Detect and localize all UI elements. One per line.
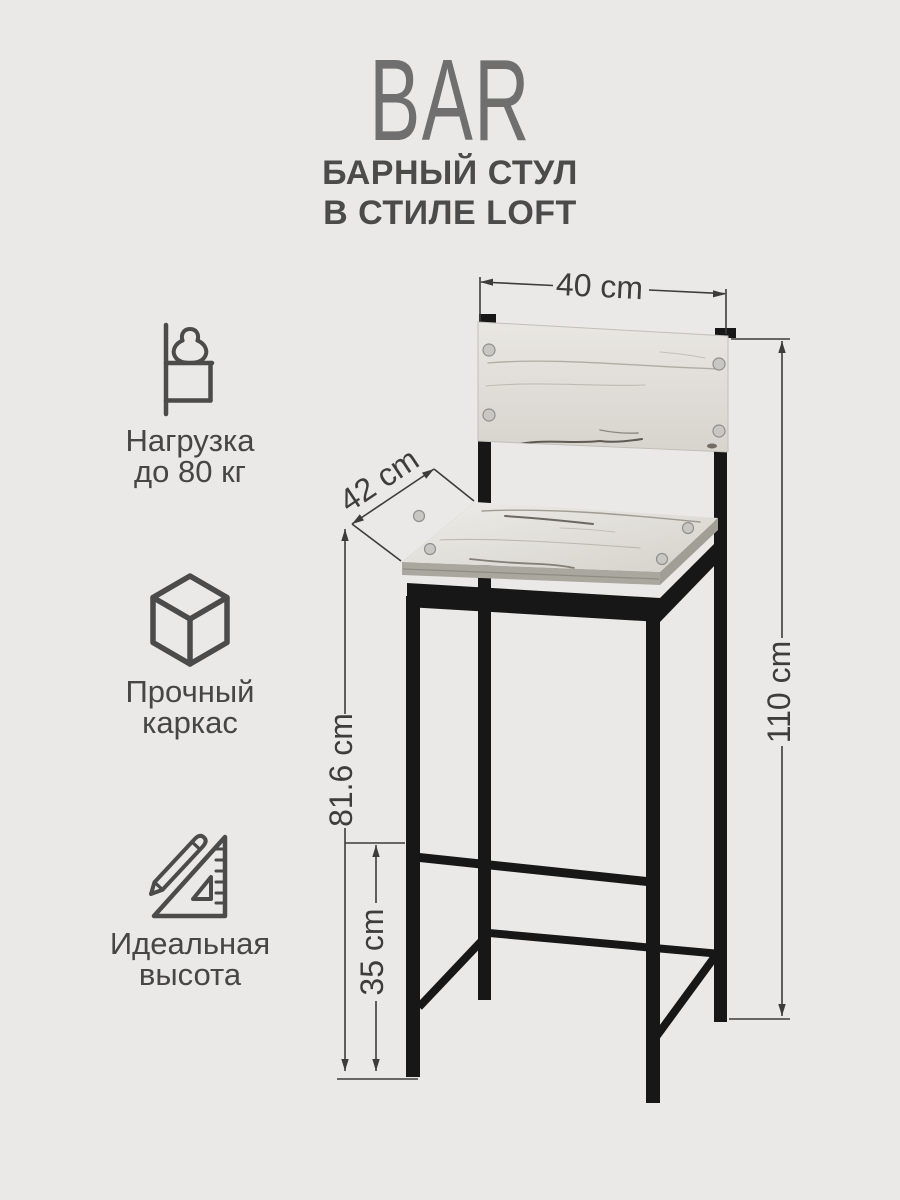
stretchers-braces: [410, 852, 721, 1037]
product-infographic: BAR БАРНЫЙ СТУЛ В СТИЛЕ LOFT Нагрузка до…: [0, 0, 900, 1200]
dimension-total-height: 110 cm: [729, 339, 797, 1019]
footrest-rail: [410, 852, 656, 887]
dimension-footrest-height: 35 cm: [345, 843, 405, 1071]
stool-dimension-diagram: 40 cm 42 cm 110 cm 81.: [0, 0, 900, 1200]
backrest-panel: [478, 322, 728, 452]
dim-label-seat-depth: 42 cm: [333, 441, 425, 519]
dim-label-footrest-height: 35 cm: [354, 908, 390, 995]
dim-label-backrest-width: 40 cm: [555, 266, 644, 306]
dim-label-seat-height: 81.6 cm: [323, 713, 359, 827]
seat-panel: [402, 502, 718, 585]
dim-label-total-height: 110 cm: [761, 641, 797, 744]
